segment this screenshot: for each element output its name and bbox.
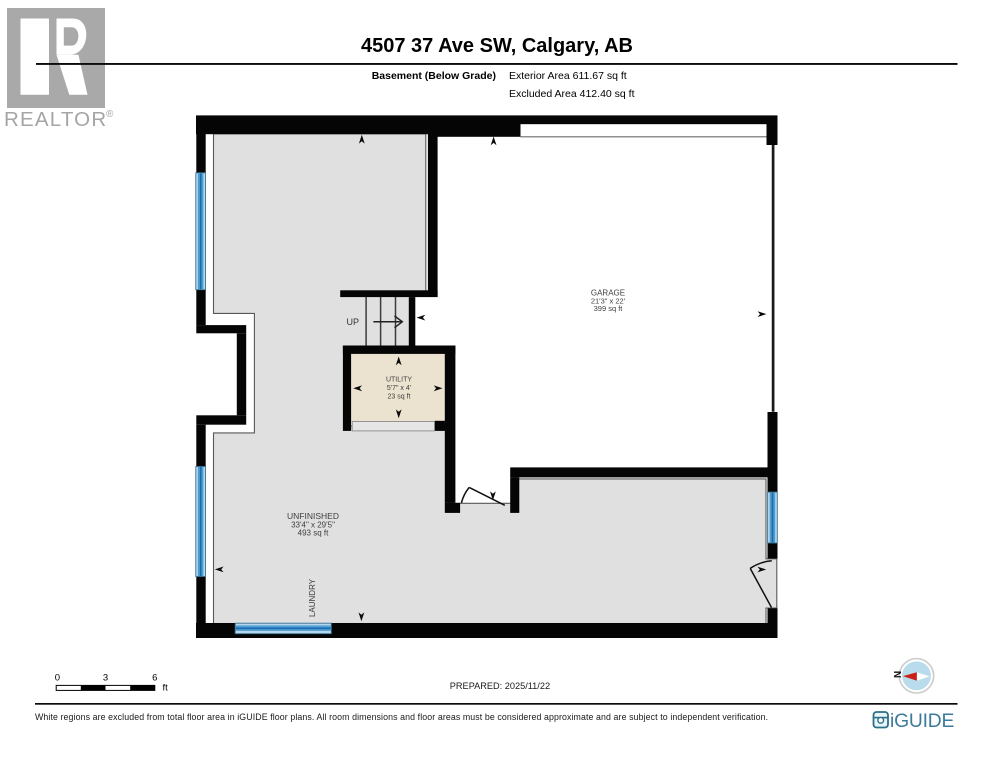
svg-text:399 sq ft: 399 sq ft xyxy=(594,304,624,313)
svg-text:ft: ft xyxy=(163,683,169,694)
svg-text:4507 37 Ave SW, Calgary, AB: 4507 37 Ave SW, Calgary, AB xyxy=(361,35,633,57)
svg-text:LAUNDRY: LAUNDRY xyxy=(308,578,317,617)
svg-text:iGUIDE: iGUIDE xyxy=(890,711,954,732)
svg-text:Exterior Area 611.67 sq ft: Exterior Area 611.67 sq ft xyxy=(509,70,627,82)
svg-text:23 sq ft: 23 sq ft xyxy=(388,394,411,401)
svg-text:UP: UP xyxy=(347,317,360,327)
svg-text:0: 0 xyxy=(55,673,60,684)
svg-text:N: N xyxy=(891,671,902,678)
svg-text:Basement (Below Grade): Basement (Below Grade) xyxy=(372,70,496,82)
svg-text:493 sq ft: 493 sq ft xyxy=(298,529,329,538)
svg-text:UTILITY: UTILITY xyxy=(386,377,412,384)
svg-text:White regions are excluded fro: White regions are excluded from total fl… xyxy=(35,712,768,722)
svg-text:5'7" x 4': 5'7" x 4' xyxy=(387,385,411,392)
svg-text:6: 6 xyxy=(152,673,157,684)
svg-text:PREPARED: 2025/11/22: PREPARED: 2025/11/22 xyxy=(450,681,550,691)
svg-text:3: 3 xyxy=(103,673,108,684)
svg-text:®: ® xyxy=(106,109,114,120)
svg-text:REALTOR: REALTOR xyxy=(4,108,107,131)
svg-text:Excluded Area 412.40 sq ft: Excluded Area 412.40 sq ft xyxy=(509,88,635,100)
